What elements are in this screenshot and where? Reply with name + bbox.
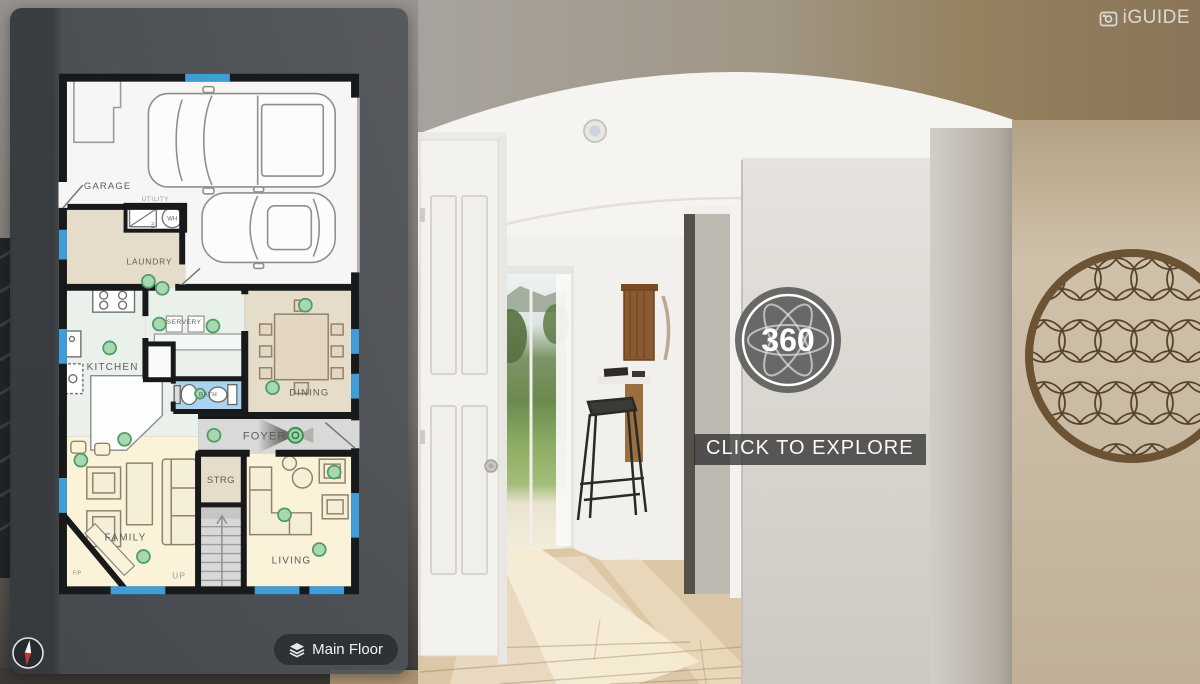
iguide-logo[interactable]: iGUIDE — [1099, 7, 1190, 29]
click-to-explore-label[interactable]: CLICK TO EXPLORE — [694, 434, 926, 465]
room-label-strg: STRG — [207, 474, 235, 485]
pano-marker[interactable] — [207, 320, 220, 333]
floorplan-panel[interactable]: FN WH — [10, 8, 408, 674]
room-label-utility: UTILITY — [142, 196, 170, 203]
pano-marker[interactable] — [103, 341, 116, 354]
floorplan-map[interactable]: FN WH — [58, 72, 360, 596]
pano-marker[interactable] — [208, 429, 221, 442]
room-label-living: LIVING — [272, 555, 312, 566]
sheer-curtain — [556, 274, 571, 546]
wall-art-flower-of-life — [1029, 253, 1200, 459]
room-label-dining: DINING — [289, 387, 329, 398]
pano-marker[interactable] — [278, 508, 291, 521]
fireplace-label: F/P — [73, 570, 82, 576]
kitchen-cabinet — [621, 284, 658, 360]
pano-marker[interactable] — [74, 454, 87, 467]
pano-marker[interactable] — [153, 318, 166, 331]
hallway-door — [418, 132, 507, 664]
pano-marker[interactable] — [266, 381, 279, 394]
furnace-label: FN — [150, 221, 156, 228]
floor-selector-label: Main Floor — [312, 641, 383, 658]
pano-marker[interactable] — [118, 433, 131, 446]
stairs-up-label: UP — [172, 570, 186, 580]
pano-marker[interactable] — [142, 275, 155, 288]
vehicle-car — [202, 187, 335, 268]
iguide-logo-text: iGUIDE — [1123, 7, 1190, 29]
pano-marker[interactable] — [156, 282, 169, 295]
badge-360[interactable]: 360 — [733, 285, 843, 395]
pano-marker[interactable] — [313, 543, 326, 556]
layers-icon — [289, 642, 305, 658]
vehicle-truck — [148, 87, 335, 194]
floor-selector-button[interactable]: Main Floor — [274, 634, 398, 665]
compass[interactable] — [10, 635, 46, 671]
room-label-bath: BATH — [199, 392, 217, 399]
pano-marker[interactable] — [299, 299, 312, 312]
room-label-foyer: FOYER — [243, 430, 287, 442]
right-doorway — [684, 206, 744, 598]
room-label-family: FAMILY — [105, 533, 147, 544]
water-heater-label: WH — [167, 217, 177, 223]
room-label-garage: GARAGE — [84, 180, 131, 191]
pantry-closet — [145, 344, 173, 380]
room-label-servery: SERVERY — [167, 319, 202, 326]
pano-marker[interactable] — [328, 466, 341, 479]
room-label-kitchen: KITCHEN — [87, 362, 139, 373]
pano-marker[interactable] — [137, 550, 150, 563]
room-label-laundry: LAUNDRY — [127, 256, 173, 266]
camera-icon — [1099, 10, 1118, 27]
badge-360-label: 360 — [761, 322, 814, 358]
